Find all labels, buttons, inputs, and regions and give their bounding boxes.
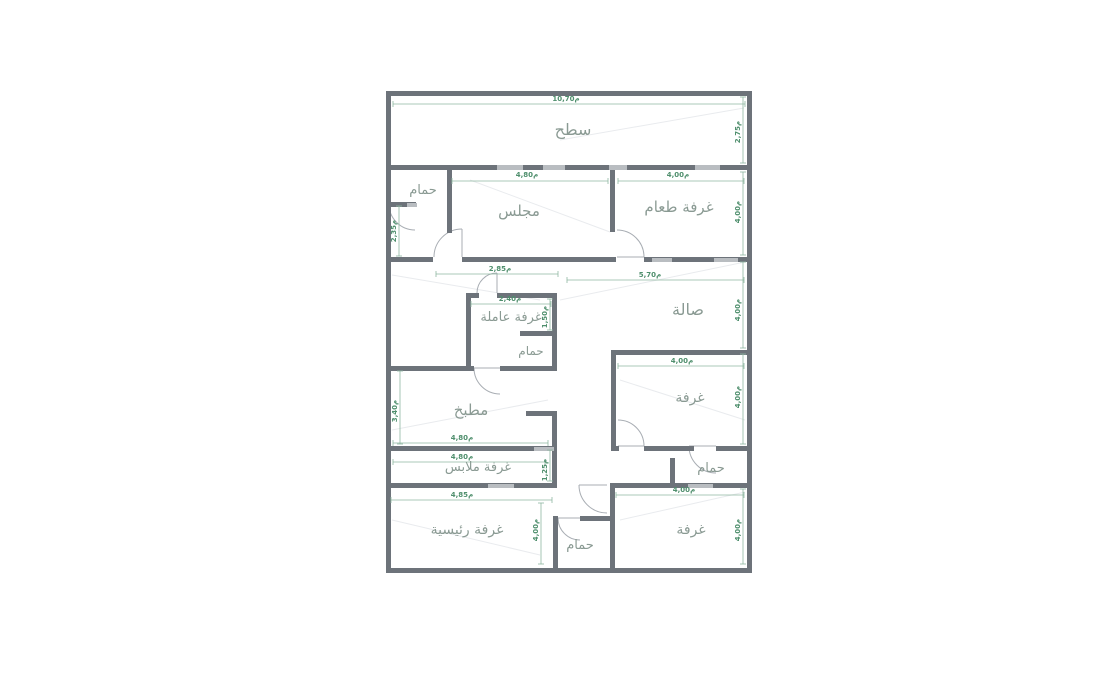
room-label-bathroom-top-left: حمام xyxy=(409,183,437,198)
wall-segment xyxy=(466,293,471,370)
wall-segment xyxy=(611,350,747,355)
room-label-room-middle-right: غرفة xyxy=(675,390,704,406)
room-label-hall: صالة xyxy=(672,300,704,319)
dim-majlis-width: م4,80 xyxy=(516,171,538,179)
floor-plan-page: م10,70م2,75م4,80م4,00م4,00م2,35م2,85م5,7… xyxy=(0,0,1096,693)
wall-segment xyxy=(553,516,558,573)
wall-segment xyxy=(386,366,474,371)
room-label-room-bottom-right: غرفة xyxy=(676,522,705,538)
door-dining-arc xyxy=(617,230,644,257)
dim-master-width: م4,85 xyxy=(451,491,473,499)
window-segment xyxy=(609,165,627,170)
room-label-majlis: مجلس xyxy=(498,202,540,220)
door-majlis-arc xyxy=(434,229,462,257)
wall-segment xyxy=(391,257,433,262)
dim-kitchen-width: م4,80 xyxy=(451,434,473,442)
wall-segment xyxy=(386,91,391,573)
dim-hall-width: م5,70 xyxy=(639,271,661,279)
dim-dining-width: م4,00 xyxy=(667,171,689,179)
room-label-roof-terrace: سطح xyxy=(555,120,592,140)
wall-segment xyxy=(500,366,557,371)
dim-dressing-height: م1,25 xyxy=(541,459,549,481)
window-segment xyxy=(714,258,738,262)
dim-room-mid-width: م4,00 xyxy=(671,357,693,365)
construction-line xyxy=(470,180,610,232)
wall-segment xyxy=(644,446,694,451)
wall-segment xyxy=(447,170,452,233)
room-label-bathroom-bottom: حمام xyxy=(566,538,594,553)
wall-segment xyxy=(462,257,616,262)
room-label-bathroom-right: حمام xyxy=(697,461,725,476)
wall-segment xyxy=(611,446,619,451)
window-segment xyxy=(497,165,523,170)
window-segment xyxy=(652,258,672,262)
room-label-maid-bathroom: حمام xyxy=(518,344,543,358)
dim-room-br-height: م4,00 xyxy=(734,519,742,541)
wall-segment xyxy=(386,568,752,573)
door-room-middle-arc xyxy=(618,420,644,446)
wall-segment xyxy=(670,458,675,485)
door-corridor-arc xyxy=(579,485,607,513)
wall-segment xyxy=(580,516,612,521)
wall-segment xyxy=(610,483,615,573)
dim-master-height: م4,00 xyxy=(532,519,540,541)
window-segment xyxy=(407,203,417,207)
construction-line xyxy=(560,262,745,300)
room-label-dining-room: غرفة طعام xyxy=(644,198,713,216)
wall-segment xyxy=(520,331,557,336)
room-label-kitchen: مطبخ xyxy=(454,401,489,419)
dim-room-br-width: م4,00 xyxy=(673,486,695,494)
floor-plan-canvas: م10,70م2,75م4,80م4,00م4,00م2,35م2,85م5,7… xyxy=(0,0,1096,693)
dim-kitchen-height: م3,40 xyxy=(391,400,399,422)
window-segment xyxy=(543,165,565,170)
door-bathroom-bottom-arc xyxy=(558,518,580,540)
dim-hall-height: م4,00 xyxy=(734,299,742,321)
wall-segment xyxy=(610,170,615,232)
wall-segment xyxy=(747,91,752,573)
window-segment xyxy=(488,484,514,488)
dim-dining-height: م4,00 xyxy=(734,201,742,223)
dim-hall-west: م2,85 xyxy=(489,265,511,273)
construction-line xyxy=(620,492,745,520)
dim-maid-width: م2,40 xyxy=(499,295,521,303)
dim-bath-tl-height: م2,35 xyxy=(390,220,398,242)
window-segment xyxy=(695,165,720,170)
room-label-dressing-room: غرفة ملابس xyxy=(445,460,511,475)
wall-segment xyxy=(716,446,747,451)
wall-segment xyxy=(386,483,557,488)
room-label-maid-room: غرفة عاملة xyxy=(480,310,541,325)
dim-maid-height: م1,50 xyxy=(541,306,549,328)
room-label-master-bedroom: غرفة رئيسية xyxy=(431,522,504,538)
wall-segment xyxy=(611,350,616,450)
door-kitchen-arc xyxy=(474,368,500,394)
dim-roof-height: م2,75 xyxy=(734,121,742,143)
dim-top-width: م10,70 xyxy=(552,95,579,103)
dim-room-mid-height: م4,00 xyxy=(734,386,742,408)
wall-segment xyxy=(391,165,747,170)
wall-segment xyxy=(386,446,557,451)
